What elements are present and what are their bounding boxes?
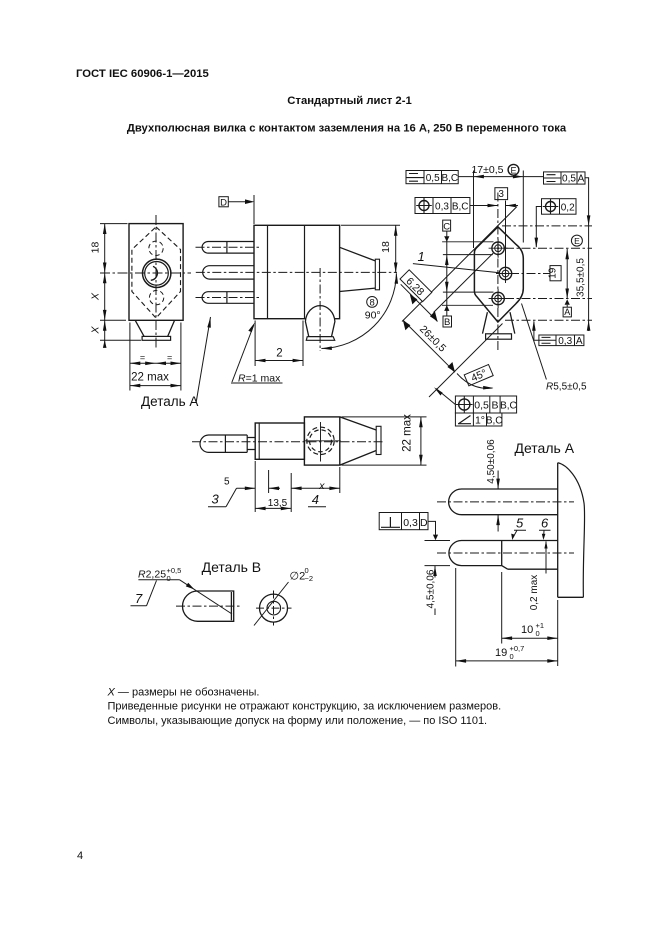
svg-text:B,C: B,C [486,416,503,427]
svg-text:13,5: 13,5 [268,498,288,509]
svg-text:2: 2 [276,348,282,360]
svg-text:4: 4 [77,850,83,862]
svg-text:3: 3 [212,492,220,507]
svg-text:17±0,5: 17±0,5 [471,164,503,176]
svg-text:Деталь А: Деталь А [141,394,198,409]
svg-text:5: 5 [516,516,524,531]
svg-text:E: E [510,165,516,175]
svg-text:X: X [90,326,102,335]
svg-text:0,3: 0,3 [558,336,572,347]
svg-text:Двухполюсная вилка с контактом: Двухполюсная вилка с контактом заземлени… [127,123,567,135]
svg-text:22 max: 22 max [131,372,169,384]
svg-text:B: B [491,400,498,412]
svg-text:0,5: 0,5 [562,174,576,185]
svg-text:22 max: 22 max [402,414,414,452]
svg-text:A: A [578,174,585,185]
svg-text:18: 18 [380,241,392,253]
svg-text:−2: −2 [305,574,314,583]
svg-text:=: = [140,353,145,363]
svg-text:90°: 90° [365,310,381,322]
svg-text:D: D [220,197,227,208]
svg-text:0,3: 0,3 [403,517,418,529]
svg-text:0,2: 0,2 [561,203,575,214]
svg-text:D: D [420,517,428,529]
svg-text:0: 0 [536,629,540,638]
svg-text:0: 0 [167,574,171,583]
svg-text:A: A [576,336,583,347]
svg-text:10: 10 [521,624,533,636]
svg-text:Приведенные рисунки не отражаю: Приведенные рисунки не отражают конструк… [108,701,502,713]
svg-text:B: B [444,317,450,328]
svg-text:0,5: 0,5 [426,173,440,184]
svg-text:Деталь А: Деталь А [515,440,575,456]
svg-text:=: = [167,353,172,363]
svg-text:0,2 max: 0,2 max [529,575,540,611]
svg-text:6: 6 [541,516,549,531]
svg-text:C: C [443,221,450,232]
svg-text:19: 19 [548,267,559,279]
svg-text:B,C: B,C [441,173,458,184]
svg-text:3: 3 [498,189,504,200]
svg-text:Символы, указывающие допуск на: Символы, указывающие допуск на форму или… [108,715,488,727]
svg-text:Стандартный лист 2-1: Стандартный лист 2-1 [287,95,412,107]
svg-text:4: 4 [312,492,319,507]
svg-text:7: 7 [135,591,143,606]
svg-text:R2,25: R2,25 [138,569,166,581]
svg-text:A: A [564,307,570,317]
svg-text:1: 1 [418,249,425,264]
svg-text:1°: 1° [475,415,485,427]
svg-text:E: E [574,236,580,246]
svg-text:R5,5±0,5: R5,5±0,5 [546,382,587,393]
svg-text:0,3: 0,3 [435,202,449,213]
svg-text:Деталь В: Деталь В [202,559,262,575]
svg-text:18: 18 [90,242,102,254]
svg-text:∅2: ∅2 [290,571,306,583]
svg-text:4,50±0,06: 4,50±0,06 [486,439,497,484]
svg-text:B,C: B,C [452,202,469,213]
svg-text:5: 5 [224,477,230,488]
svg-text:8: 8 [369,297,374,308]
svg-text:X — размеры не обозначены.: X — размеры не обозначены. [107,687,260,699]
svg-text:19: 19 [495,647,507,659]
svg-text:B,C: B,C [500,401,517,412]
svg-text:0: 0 [510,652,514,661]
svg-text:X: X [90,292,102,301]
svg-text:35,5±0,5: 35,5±0,5 [576,258,587,297]
svg-text:4,5±0,06: 4,5±0,06 [426,569,437,608]
svg-text:ГОСТ IEC 60906-1—2015: ГОСТ IEC 60906-1—2015 [76,68,209,80]
svg-text:x: x [318,480,325,492]
svg-text:0,5: 0,5 [474,400,489,412]
